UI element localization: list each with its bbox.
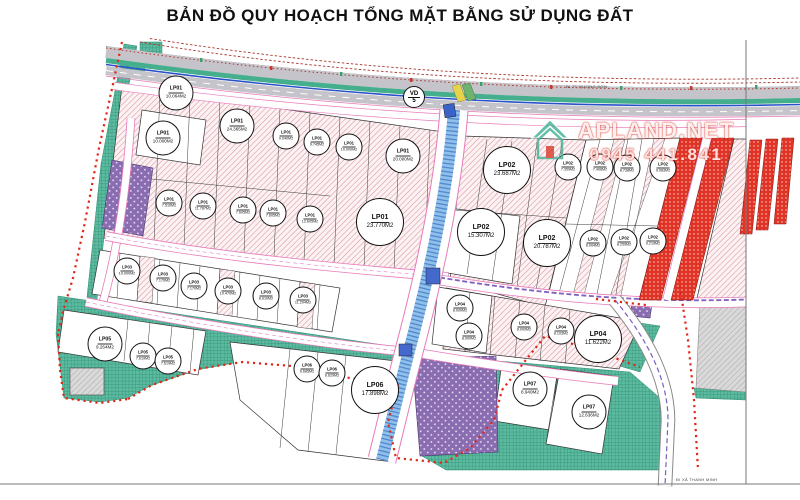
lot-label: LP0411.622M2 xyxy=(574,315,622,363)
lot-label: LP048.103M2 xyxy=(548,318,575,345)
map-canvas xyxy=(0,0,800,500)
lot-label: LP048.000M2 xyxy=(511,314,538,341)
direction-label-thanh-minh: ĐI XÃ THANH MINH xyxy=(676,477,717,482)
lot-area: 6.629M2 xyxy=(325,374,339,378)
culvert xyxy=(443,103,456,117)
lot-code: LP05 xyxy=(98,338,112,345)
lot-label: LP0617.898M2 xyxy=(351,366,399,414)
lot-area: 11.622M2 xyxy=(585,340,611,347)
culvert xyxy=(426,268,440,284)
lot-label: LP059.264M2 xyxy=(88,327,123,362)
existing-land-gray xyxy=(696,303,746,392)
lot-label: LP0111.787M2 xyxy=(190,193,217,220)
lot-area: 10.470M2 xyxy=(220,292,236,296)
planning-map: BẢN ĐỒ QUY HOẠCH TỔNG MẶT BẰNG SỬ DỤNG Đ… xyxy=(0,0,800,500)
direction-label-huong-son: ĐI TT HƯƠNG SƠN xyxy=(566,84,607,89)
lot-area: 11.787M2 xyxy=(195,207,211,211)
lot-label: LP078.940M2 xyxy=(513,372,548,407)
lot-label: LP0311.204M2 xyxy=(290,287,317,314)
lot-label: LP027.408M2 xyxy=(587,154,614,181)
lot-area: 20.000M2 xyxy=(393,157,413,162)
lot-area: 7.408M2 xyxy=(593,168,607,172)
lot-area: 23.770M2 xyxy=(367,223,394,230)
lot-label: LP017.510M2 xyxy=(156,190,183,217)
lot-area: 12.605M2 xyxy=(302,220,318,224)
lot-label: LP0110.064M2 xyxy=(159,76,194,111)
lot-label: LP048.000M2 xyxy=(456,323,483,350)
lot-area: 10.000M2 xyxy=(153,139,173,144)
lot-area: 10.000M2 xyxy=(119,272,135,276)
lot-area: 8.940M2 xyxy=(521,390,539,395)
lot-label: LP0110.000M2 xyxy=(336,134,363,161)
lot-label: LP037.170M2 xyxy=(150,265,177,292)
lot-area: 15.307M2 xyxy=(468,233,495,240)
route-badge-vd5: VD 5 xyxy=(403,86,425,108)
map-title: BẢN ĐỒ QUY HOẠCH TỔNG MẶT BẰNG SỬ DỤNG Đ… xyxy=(0,6,800,26)
lot-label: LP019.040M2 xyxy=(273,123,300,150)
lot-area: 8.103M2 xyxy=(554,332,568,336)
lot-label: LP017.605M2 xyxy=(230,197,257,224)
route-badge-bottom: 5 xyxy=(412,98,415,104)
lot-label: LP029.219M2 xyxy=(640,228,667,255)
lot-code: LP01 xyxy=(156,132,170,139)
lot-label: LP019.745M2 xyxy=(304,129,331,156)
lot-area: 8.000M2 xyxy=(462,337,476,341)
lot-code: LP07 xyxy=(523,383,537,390)
lot-label: LP027.359M2 xyxy=(555,154,582,181)
lot-label: LP0310.470M2 xyxy=(215,278,242,305)
lot-label: LP0112.605M2 xyxy=(297,206,324,233)
lot-label: LP037.170M2 xyxy=(181,273,208,300)
lot-label: LP029.083M2 xyxy=(650,155,677,182)
lot-label: LP0220.787M2 xyxy=(523,219,571,267)
lot-area: 7.619M2 xyxy=(136,357,150,361)
lot-label: LP0712.636M2 xyxy=(572,395,607,430)
lot-area: 12.636M2 xyxy=(579,413,599,418)
lot-area: 9.219M2 xyxy=(646,242,660,246)
lot-label: LP066.685M2 xyxy=(294,356,321,383)
gray-utility-square xyxy=(70,368,104,395)
lot-code: LP01 xyxy=(371,214,390,223)
lot-area: 8.004M2 xyxy=(586,244,600,248)
lot-label: LP0123.770M2 xyxy=(356,198,404,246)
lot-area: 8.259M2 xyxy=(617,243,631,247)
lot-area: 8.738M2 xyxy=(620,169,634,173)
lot-area: 7.510M2 xyxy=(162,204,176,208)
lot-area: 24.365M2 xyxy=(227,127,247,132)
lot-label: LP0310.000M2 xyxy=(114,258,141,285)
lot-code: LP07 xyxy=(582,406,596,413)
culvert xyxy=(399,344,412,356)
lot-label: LP017.605M2 xyxy=(260,200,287,227)
lot-area: 23.687M2 xyxy=(494,171,521,178)
lot-code: LP06 xyxy=(366,382,385,391)
lot-area: 7.170M2 xyxy=(187,287,201,291)
lot-area: 9.264M2 xyxy=(96,345,114,350)
route-badge-top: VD xyxy=(408,91,420,98)
lot-area: 11.204M2 xyxy=(295,301,311,305)
lot-label: LP0124.365M2 xyxy=(220,109,255,144)
lot-area: 7.359M2 xyxy=(561,168,575,172)
lot-label: LP057.619M2 xyxy=(155,348,182,375)
lot-area: 7.605M2 xyxy=(236,211,250,215)
lot-label: LP048.000M2 xyxy=(447,295,474,322)
lot-label: LP0120.000M2 xyxy=(386,139,421,174)
lot-area: 9.745M2 xyxy=(310,143,324,147)
lot-label: LP028.738M2 xyxy=(614,155,641,182)
lot-area: 7.605M2 xyxy=(266,214,280,218)
lot-code: LP01 xyxy=(169,87,183,94)
lot-code: LP02 xyxy=(498,162,517,171)
lot-area: 6.685M2 xyxy=(300,370,314,374)
lot-area: 9.040M2 xyxy=(279,137,293,141)
lot-area: 8.000M2 xyxy=(517,328,531,332)
lot-area: 10.064M2 xyxy=(166,94,186,99)
lot-label: LP038.610M2 xyxy=(253,283,280,310)
lot-area: 10.000M2 xyxy=(341,148,357,152)
lot-label: LP0223.687M2 xyxy=(483,146,531,194)
lot-area: 8.610M2 xyxy=(259,297,273,301)
lot-label: LP0110.000M2 xyxy=(146,121,181,156)
lot-label: LP066.629M2 xyxy=(319,360,346,387)
lot-label: LP028.004M2 xyxy=(580,230,607,257)
lot-code: LP01 xyxy=(396,150,410,157)
lot-area: 17.898M2 xyxy=(362,391,389,398)
lot-area: 20.787M2 xyxy=(534,244,561,251)
lot-area: 7.170M2 xyxy=(156,279,170,283)
lot-code: LP04 xyxy=(589,331,608,340)
lot-area: 7.619M2 xyxy=(161,362,175,366)
lot-code: LP02 xyxy=(538,235,557,244)
lot-label: LP028.259M2 xyxy=(611,229,638,256)
lot-label: LP057.619M2 xyxy=(130,343,157,370)
lot-code: LP01 xyxy=(230,120,244,127)
lot-area: 9.083M2 xyxy=(656,169,670,173)
lot-code: LP02 xyxy=(472,224,491,233)
lot-area: 8.000M2 xyxy=(453,309,467,313)
lot-label: LP0215.307M2 xyxy=(457,208,505,256)
